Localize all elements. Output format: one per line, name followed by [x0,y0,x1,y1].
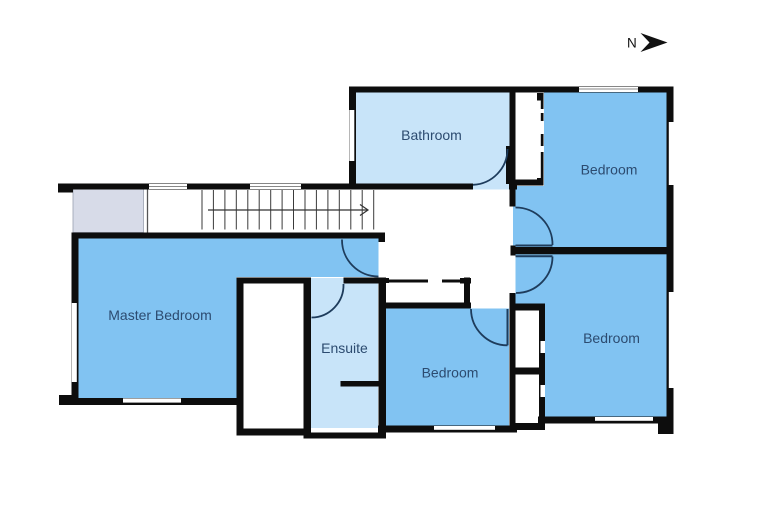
svg-text:Ensuite: Ensuite [321,340,368,356]
svg-text:Bathroom: Bathroom [401,127,462,143]
svg-text:Bedroom: Bedroom [422,365,479,381]
svg-text:Bedroom: Bedroom [581,162,638,178]
svg-text:Bedroom: Bedroom [583,330,640,346]
svg-text:Master Bedroom: Master Bedroom [108,307,211,323]
svg-text:N: N [627,36,637,51]
